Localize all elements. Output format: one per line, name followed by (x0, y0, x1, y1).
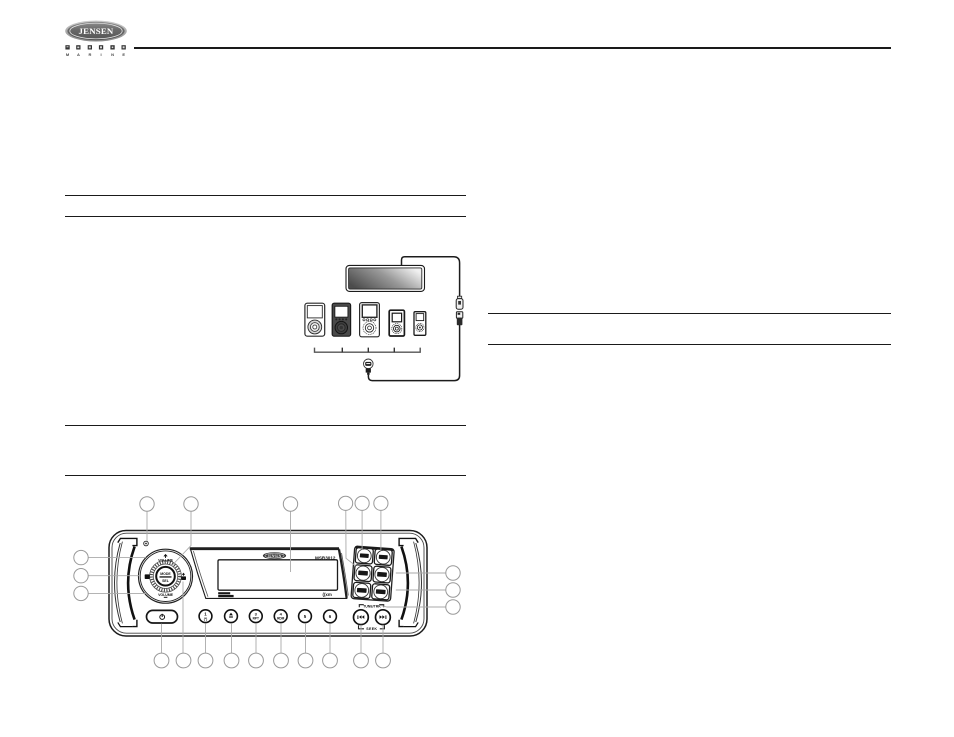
svg-text:MODE: MODE (160, 572, 171, 576)
svg-text:R: R (88, 52, 91, 57)
svg-text:RDM: RDM (277, 617, 285, 621)
svg-text:(*): (*) (204, 617, 208, 621)
svg-text:M: M (66, 52, 70, 57)
svg-text:TUNE/TRK: TUNE/TRK (363, 605, 381, 609)
svg-text:I: I (101, 52, 102, 57)
svg-text:SEEK: SEEK (366, 627, 377, 631)
svg-text:VOLUME: VOLUME (158, 559, 173, 563)
svg-text:JENSEN: JENSEN (268, 554, 282, 558)
svg-text:JENSEN: JENSEN (79, 26, 114, 36)
svg-text:N: N (111, 52, 114, 57)
svg-text:VOLUME: VOLUME (158, 593, 173, 597)
svg-text:SEL: SEL (162, 579, 170, 583)
svg-text:RPT: RPT (253, 617, 259, 621)
svg-text:A: A (77, 52, 80, 57)
svg-text:((xm: ((xm (323, 592, 332, 597)
svg-text:E: E (122, 52, 125, 57)
